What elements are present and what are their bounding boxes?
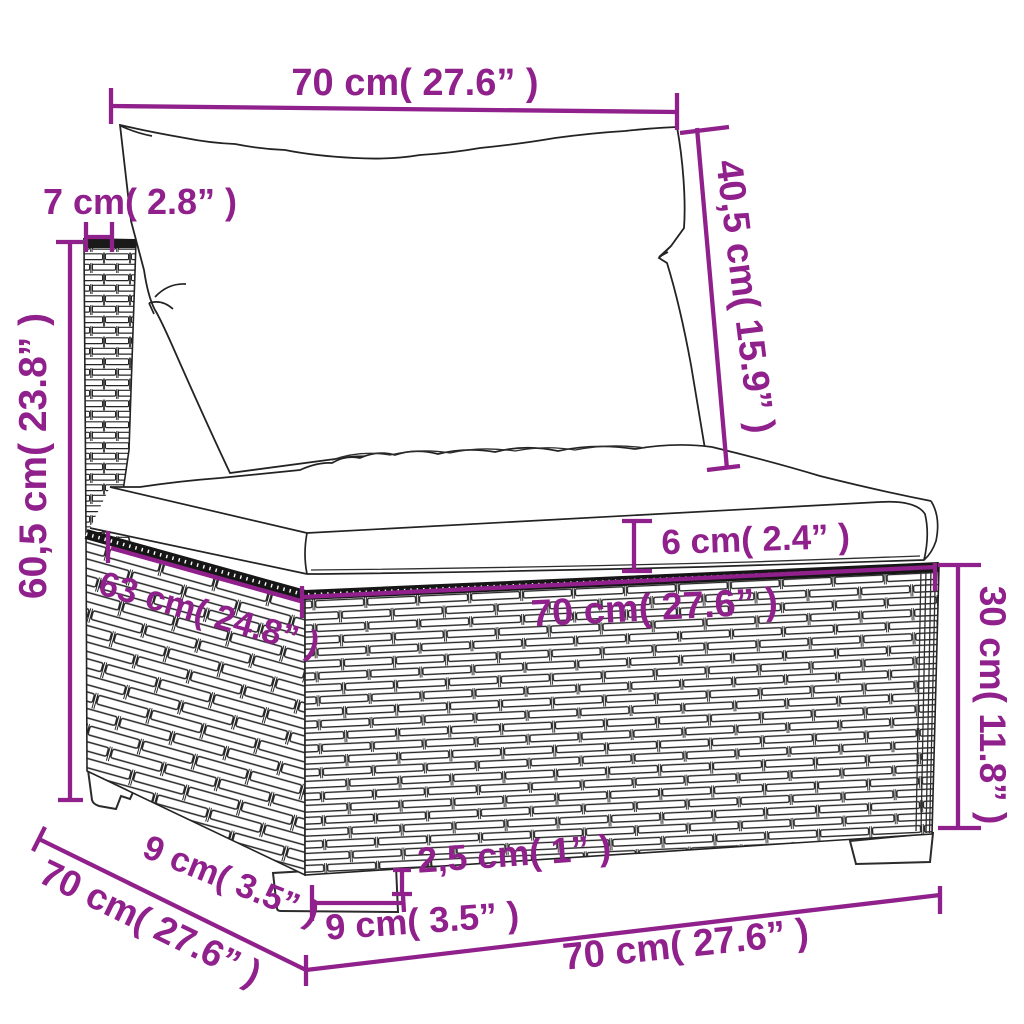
svg-text:7 cm( 2.8” ): 7 cm( 2.8” ) [43, 181, 237, 222]
svg-text:70 cm( 27.6” ): 70 cm( 27.6” ) [291, 62, 538, 104]
svg-text:60,5 cm( 23.8” ): 60,5 cm( 23.8” ) [12, 313, 55, 599]
svg-text:30 cm( 11.8” ): 30 cm( 11.8” ) [972, 586, 1013, 825]
svg-text:6 cm( 2.4” ): 6 cm( 2.4” ) [661, 517, 851, 563]
